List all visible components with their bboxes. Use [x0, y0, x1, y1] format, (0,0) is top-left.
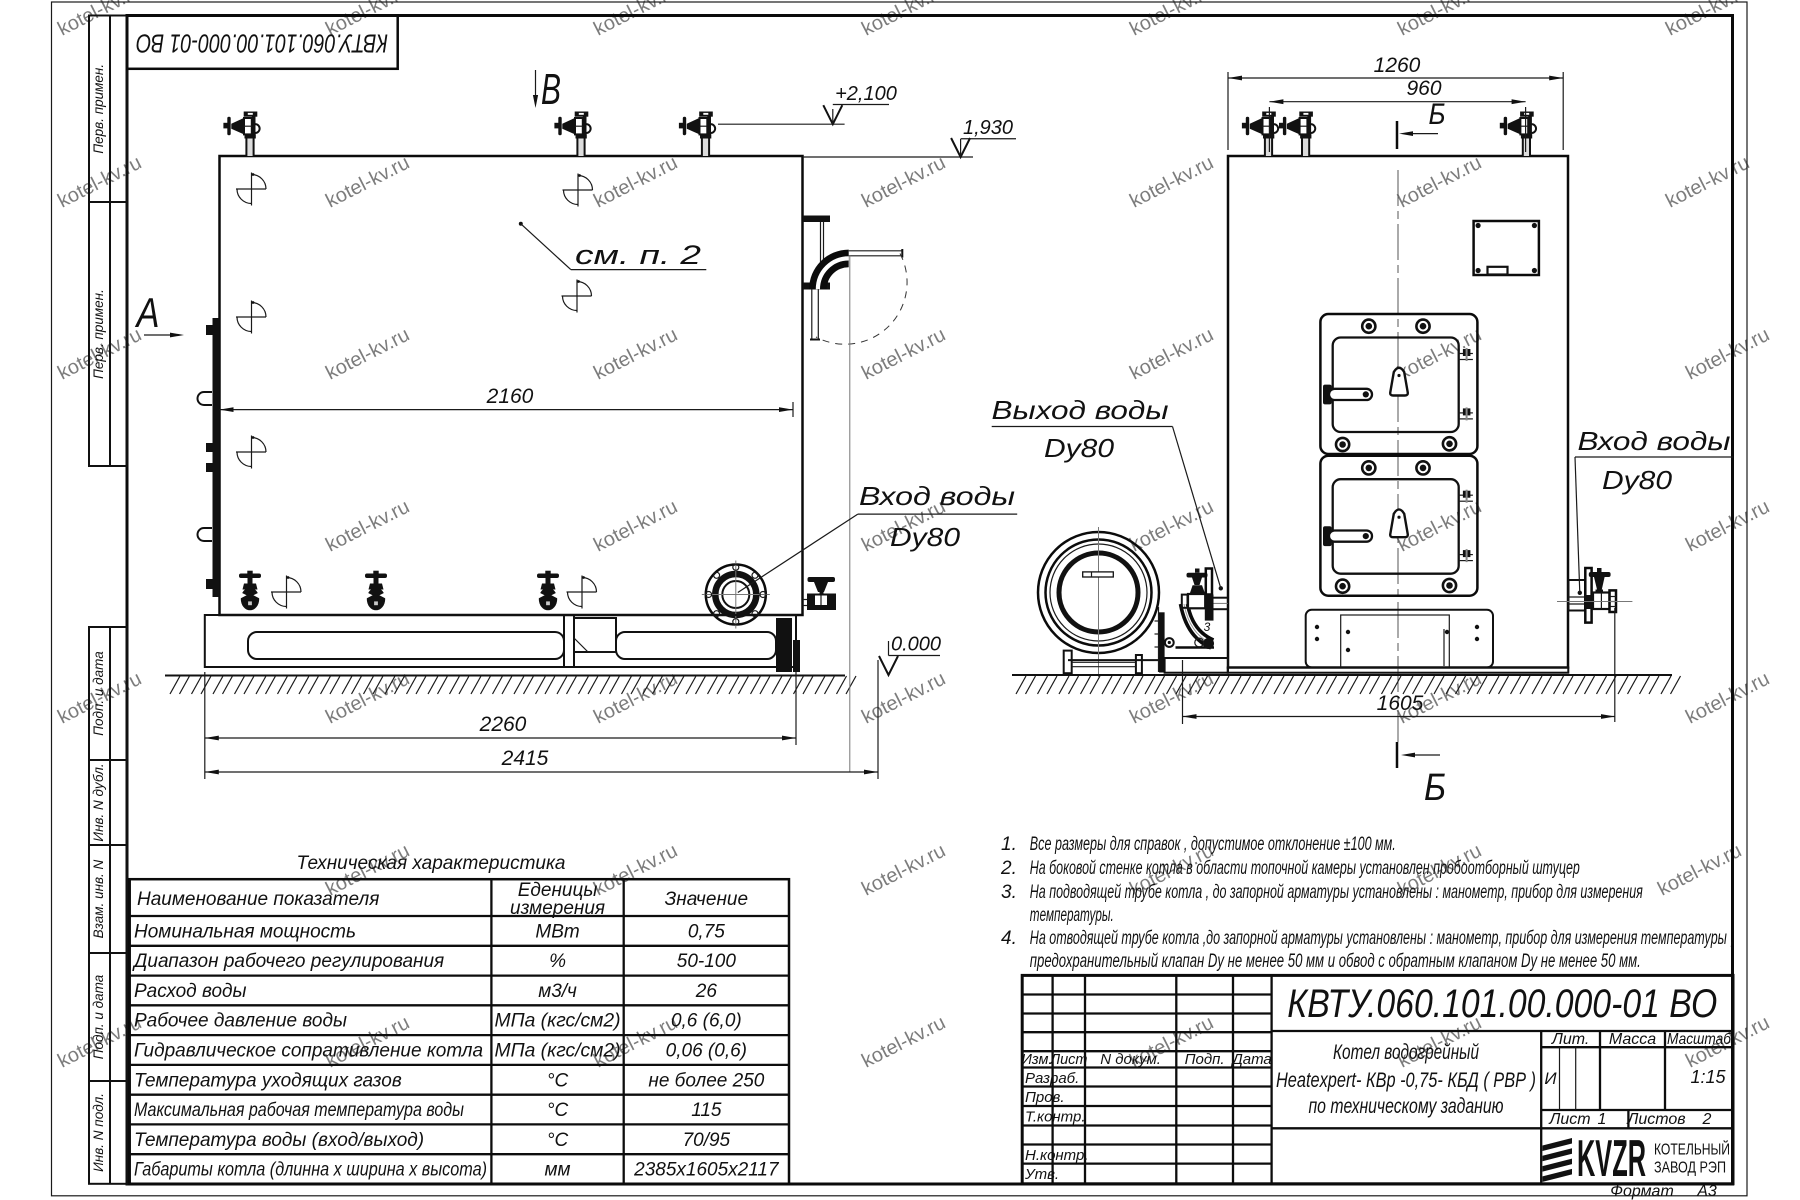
- svg-text:МВт: МВт: [535, 921, 579, 942]
- svg-text:Dy80: Dy80: [890, 522, 961, 552]
- svg-text:Листов: Листов: [1626, 1111, 1685, 1128]
- svg-text:Лист: Лист: [1548, 1111, 1590, 1128]
- svg-text:Дата: Дата: [1230, 1051, 1272, 1068]
- svg-text:50-100: 50-100: [677, 951, 737, 972]
- svg-text:КВТУ.060.101.00.000-01 ВО: КВТУ.060.101.00.000-01 ВО: [136, 28, 388, 58]
- svg-text:0,75: 0,75: [688, 921, 725, 942]
- svg-text:Вход воды: Вход воды: [859, 481, 1015, 511]
- svg-text:м3/ч: м3/ч: [538, 981, 577, 1002]
- svg-text:Котел водогрейный: Котел водогрейный: [1333, 1041, 1479, 1064]
- svg-text:МПа (кгс/см2): МПа (кгс/см2): [495, 1041, 621, 1062]
- svg-text:Лист: Лист: [1049, 1052, 1087, 1068]
- svg-text:Масса: Масса: [1609, 1031, 1656, 1048]
- svg-text:Н.контр.: Н.контр.: [1025, 1147, 1089, 1164]
- svg-text:Утв.: Утв.: [1024, 1166, 1059, 1183]
- svg-text:На подводящей трубе котла ,: На подводящей трубе котла , до запорной …: [1030, 882, 1643, 903]
- svg-text:А3: А3: [1696, 1183, 1717, 1200]
- svg-text:2.: 2.: [1000, 858, 1017, 879]
- svg-text:ЗАВОД РЭП: ЗАВОД РЭП: [1654, 1160, 1726, 1177]
- svg-text:Б: Б: [1429, 98, 1446, 131]
- svg-text:Перв. примен.: Перв. примен.: [91, 64, 106, 154]
- svg-text:измерения: измерения: [510, 898, 605, 919]
- svg-text:КОТЕЛЬНЫЙ: КОТЕЛЬНЫЙ: [1654, 1141, 1730, 1159]
- svg-text:А: А: [134, 289, 159, 336]
- svg-text:Гидравлическое сопративление к: Гидравлическое сопративление котла: [134, 1041, 483, 1062]
- svg-text:Изм.: Изм.: [1022, 1052, 1053, 1068]
- svg-text:0.000: 0.000: [891, 634, 941, 656]
- svg-text:26: 26: [695, 981, 718, 1002]
- svg-text:0,06 (0,6): 0,06 (0,6): [666, 1041, 747, 1062]
- svg-text:Максимальная рабочая температу: Максимальная рабочая температура воды: [134, 1100, 464, 1121]
- svg-text:1: 1: [1598, 1111, 1607, 1128]
- svg-text:Номинальная мощность: Номинальная мощность: [134, 921, 356, 942]
- svg-text:Формат: Формат: [1610, 1183, 1674, 1200]
- svg-text:Инв. N дубл.: Инв. N дубл.: [91, 763, 106, 841]
- svg-text:Диапазон рабочего регулировани: Диапазон рабочего регулирования: [132, 951, 444, 972]
- svg-text:На боковой стенке котла в обла: На боковой стенке котла в области топочн…: [1030, 858, 1580, 879]
- svg-text:Рабочее давление воды: Рабочее давление воды: [134, 1011, 347, 1032]
- svg-text:3: 3: [1204, 620, 1211, 634]
- svg-text:Dy80: Dy80: [1602, 465, 1673, 495]
- svg-text:не более 250: не более 250: [648, 1070, 764, 1091]
- svg-text:2385х1605х2117: 2385х1605х2117: [633, 1160, 780, 1181]
- svg-text:Значение: Значение: [665, 889, 748, 910]
- svg-text:Температура уходящих газов: Температура уходящих газов: [134, 1070, 402, 1091]
- svg-text:Вход воды: Вход воды: [1578, 426, 1731, 456]
- svg-text:Пров.: Пров.: [1025, 1089, 1065, 1106]
- svg-text:В: В: [541, 65, 561, 114]
- svg-text:1:15: 1:15: [1690, 1067, 1726, 1087]
- svg-text:N докум.: N докум.: [1100, 1051, 1161, 1068]
- svg-text:1,930: 1,930: [963, 117, 1013, 139]
- svg-text:2260: 2260: [479, 713, 527, 736]
- svg-text:Б: Б: [1424, 767, 1446, 809]
- svg-text:Наименование показателя: Наименование показателя: [137, 889, 379, 910]
- svg-text:3.: 3.: [1001, 882, 1017, 903]
- svg-text:2: 2: [1702, 1111, 1712, 1128]
- svg-text:1605: 1605: [1377, 692, 1424, 715]
- svg-text:Подп. и дата: Подп. и дата: [91, 651, 106, 736]
- svg-text:2415: 2415: [501, 747, 549, 770]
- svg-text:%: %: [549, 951, 566, 972]
- svg-text:70/95: 70/95: [683, 1130, 731, 1151]
- svg-text:0,6 (6,0): 0,6 (6,0): [671, 1011, 742, 1032]
- svg-text:мм: мм: [545, 1160, 571, 1181]
- svg-text:Подп. и дата: Подп. и дата: [91, 974, 106, 1059]
- svg-text:КВТУ.060.101.00.000-01 ВО: КВТУ.060.101.00.000-01 ВО: [1287, 982, 1717, 1026]
- svg-text:°С: °С: [547, 1130, 569, 1151]
- svg-text:Разраб.: Разраб.: [1025, 1070, 1079, 1087]
- svg-text:Температура воды (вход/выход): Температура воды (вход/выход): [134, 1130, 424, 1151]
- svg-text:Взам. инв. N: Взам. инв. N: [91, 859, 106, 938]
- svg-text:1.: 1.: [1001, 834, 1017, 855]
- svg-text:И: И: [1544, 1069, 1557, 1088]
- svg-text:Heatexpert- КВр -0,75- КБД ( Р: Heatexpert- КВр -0,75- КБД ( РВР ): [1276, 1069, 1536, 1092]
- svg-text:Техническая характеристика: Техническая характеристика: [296, 853, 565, 874]
- svg-text:Все размеры для справок , допу: Все размеры для справок , допустимое отк…: [1030, 834, 1396, 855]
- svg-text:предохранительный клапан Dу н: предохранительный клапан Dу не менее 50 …: [1030, 951, 1641, 972]
- svg-text:Перв. примен.: Перв. примен.: [91, 289, 106, 379]
- svg-text:Габариты котла (длинна х ширин: Габариты котла (длинна х ширина х высота…: [134, 1160, 487, 1181]
- svg-text:Т.контр.: Т.контр.: [1025, 1109, 1086, 1126]
- svg-text:2160: 2160: [486, 385, 534, 408]
- svg-text:Инв. N подл.: Инв. N подл.: [91, 1093, 106, 1172]
- svg-text:Dy80: Dy80: [1044, 433, 1115, 463]
- svg-text:Масштаб: Масштаб: [1667, 1031, 1732, 1048]
- svg-text:Выход воды: Выход воды: [992, 395, 1169, 425]
- svg-text:Расход воды: Расход воды: [134, 981, 247, 1002]
- svg-text:МПа (кгс/см2): МПа (кгс/см2): [495, 1011, 621, 1032]
- svg-text:115: 115: [691, 1100, 722, 1121]
- svg-text:4.: 4.: [1001, 928, 1017, 949]
- svg-text:см. п. 2: см. п. 2: [575, 240, 701, 270]
- svg-text:На отводящей трубе котла ,до з: На отводящей трубе котла ,до запорной ар…: [1030, 928, 1734, 949]
- svg-text:960: 960: [1406, 77, 1441, 100]
- svg-text:+2,100: +2,100: [835, 83, 897, 105]
- svg-text:Подп.: Подп.: [1185, 1051, 1225, 1068]
- svg-text:Лит.: Лит.: [1551, 1031, 1589, 1048]
- svg-text:1260: 1260: [1374, 54, 1421, 77]
- svg-text:°С: °С: [547, 1070, 569, 1091]
- svg-text:по техническому заданию: по техническому заданию: [1309, 1095, 1504, 1118]
- svg-text:KVZR: KVZR: [1577, 1130, 1646, 1188]
- svg-text:температуры.: температуры.: [1030, 905, 1114, 926]
- svg-text:°С: °С: [547, 1100, 569, 1121]
